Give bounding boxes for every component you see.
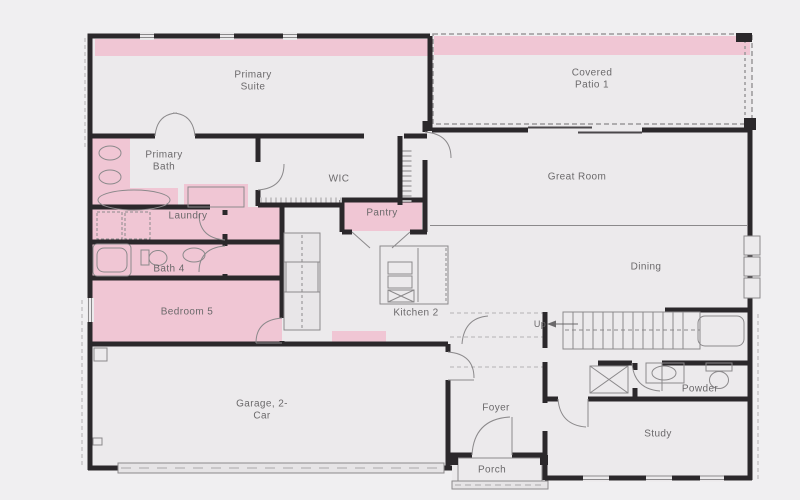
room-label-kitchen-2: Kitchen 2: [393, 307, 438, 319]
room-label-foyer: Foyer: [482, 402, 510, 414]
room-label-powder: Powder: [682, 383, 718, 395]
floor-plan-drawing: [0, 0, 800, 500]
highlight-mud-bench: [332, 331, 386, 343]
highlight-primary-suite-band: [95, 39, 428, 56]
patio-post: [736, 33, 752, 42]
floor-plan-page: Primary Suite Covered Patio 1 Primary Ba…: [0, 0, 800, 500]
room-label-bedroom-5: Bedroom 5: [161, 306, 214, 318]
room-label-porch: Porch: [478, 464, 506, 476]
room-label-laundry: Laundry: [169, 210, 208, 222]
highlight-vanity: [92, 138, 130, 188]
stairs-up-label: Up: [534, 319, 546, 329]
room-label-dining: Dining: [631, 261, 662, 273]
room-label-wic: WIC: [329, 173, 350, 185]
garage-door: [118, 463, 444, 473]
room-label-primary-bath: Primary Bath: [134, 150, 194, 173]
highlight-patio-band: [434, 36, 750, 55]
room-label-garage-2-car: Garage, 2-Car: [233, 399, 291, 422]
room-label-primary-suite: Primary Suite: [221, 70, 285, 93]
room-label-bath-4: Bath 4: [153, 263, 184, 275]
room-label-great-room: Great Room: [548, 171, 606, 183]
room-label-study: Study: [644, 428, 672, 440]
room-label-pantry: Pantry: [366, 207, 397, 219]
room-label-covered-patio-1: Covered Patio 1: [559, 68, 625, 91]
